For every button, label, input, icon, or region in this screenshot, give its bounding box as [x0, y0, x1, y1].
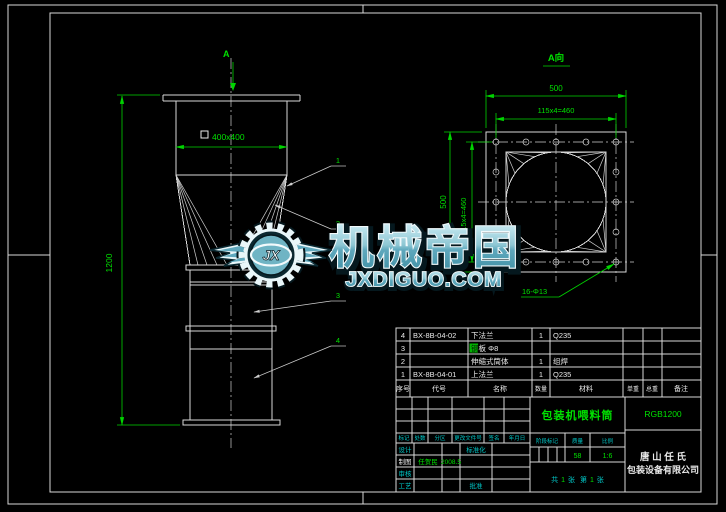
- gear-logo-icon: JX: [242, 226, 300, 284]
- revision-header: 标记 处数 分区 更改文件号 签名 年月日: [398, 434, 525, 442]
- part-no: 1: [401, 370, 405, 379]
- signature-name: 任贺民: [418, 457, 438, 466]
- part-name: 下法兰: [471, 330, 494, 340]
- view-direction-marker: A: [223, 49, 230, 59]
- part-material: Q235: [553, 370, 571, 379]
- dim-a-top-outer: 500: [549, 84, 563, 93]
- part-material: 组焊: [553, 356, 568, 366]
- label-weight: 质量: [572, 437, 584, 445]
- watermark-brand: 机械帝国: [329, 222, 521, 273]
- label-draft: 制图: [399, 457, 412, 466]
- sheet-count: 共1张第1张: [551, 475, 604, 484]
- part-no: 3: [401, 344, 405, 353]
- watermark-monogram: JX: [262, 247, 281, 263]
- header-no: 序号: [396, 384, 410, 393]
- drawing-canvas: A 400x400: [0, 0, 726, 512]
- label-date: 年月日: [509, 434, 526, 442]
- label-zone: 分区: [434, 434, 446, 442]
- watermark-domain: JXDIGUO.COM: [346, 268, 503, 291]
- title-block: 4 BX-8B-04-02 下法兰 1 Q235 3 钢板 Φ8 2 伸缩式筒体…: [396, 328, 701, 492]
- dim-a-top-holes: 115x4=460: [538, 106, 575, 115]
- balloon-4: 4: [336, 336, 340, 345]
- dim-top-square: 400x400: [212, 132, 245, 142]
- balloon-1: 1: [336, 156, 340, 165]
- header-unit-weight: 单重: [627, 385, 639, 393]
- square-symbol: [201, 131, 208, 138]
- label-approve: 批准: [470, 481, 484, 490]
- header-remark: 备注: [674, 384, 688, 393]
- label-scale: 比例: [602, 437, 614, 445]
- cad-drawing-screenshot: A 400x400: [0, 0, 726, 512]
- label-count: 处数: [414, 434, 426, 442]
- part-material: Q235: [553, 331, 571, 340]
- label-stage: 阶段标记: [536, 437, 559, 445]
- part-qty: 1: [539, 370, 543, 379]
- watermark: 机械帝国 机械帝国 JXDIGUO.COM JXDIGUO.COM: [210, 222, 523, 293]
- stage-weight-scale-labels: 阶段标记 质量 比例: [536, 437, 614, 445]
- part-no: 4: [401, 331, 405, 340]
- label-check: 审核: [399, 469, 413, 478]
- part-name: 伸缩式筒体: [471, 356, 509, 366]
- label-process: 工艺: [399, 482, 413, 490]
- parts-list-header: 序号 代号 名称 数量 材料 单重 总重 备注: [396, 384, 688, 393]
- header-qty: 数量: [535, 385, 547, 393]
- part-code: BX-8B-04-02: [413, 331, 456, 340]
- label-change-doc: 更改文件号: [454, 434, 482, 442]
- header-code: 代号: [432, 384, 446, 393]
- stage-weight-scale-values: 58 1:6: [574, 453, 613, 460]
- label-design: 设计: [399, 445, 413, 454]
- header-material: 材料: [579, 384, 593, 393]
- company-name-line2: 包装设备有限公司: [626, 464, 699, 475]
- header-total-weight: 总重: [646, 385, 658, 393]
- label-mark: 标记: [398, 434, 410, 442]
- header-name: 名称: [493, 384, 507, 393]
- scale-value: 1:6: [603, 453, 613, 460]
- dim-a-left-outer: 500: [439, 195, 448, 209]
- balloon-3: 3: [336, 291, 340, 300]
- cylinder-sections: [183, 265, 280, 425]
- signature-date: 2008.5: [441, 459, 461, 466]
- label-standard: 标准化: [466, 445, 486, 454]
- part-name: 钢板 Φ8: [471, 343, 498, 353]
- part-code: BX-8B-04-01: [413, 370, 456, 379]
- label-sign: 签名: [488, 434, 499, 442]
- weight-value: 58: [574, 453, 582, 460]
- part-no: 2: [401, 357, 405, 366]
- view-a-label: A向: [548, 52, 564, 64]
- part-qty: 1: [539, 331, 543, 340]
- drawing-title: 包装机喂料筒: [541, 408, 614, 422]
- company-name-line1: 唐 山 任 氏: [640, 451, 686, 463]
- part-name: 上法兰: [471, 369, 494, 379]
- part-qty: 1: [539, 357, 543, 366]
- hole-note: 16-Φ13: [522, 287, 547, 296]
- drawing-number: RGB1200: [644, 409, 682, 419]
- dim-height: 1200: [104, 253, 114, 272]
